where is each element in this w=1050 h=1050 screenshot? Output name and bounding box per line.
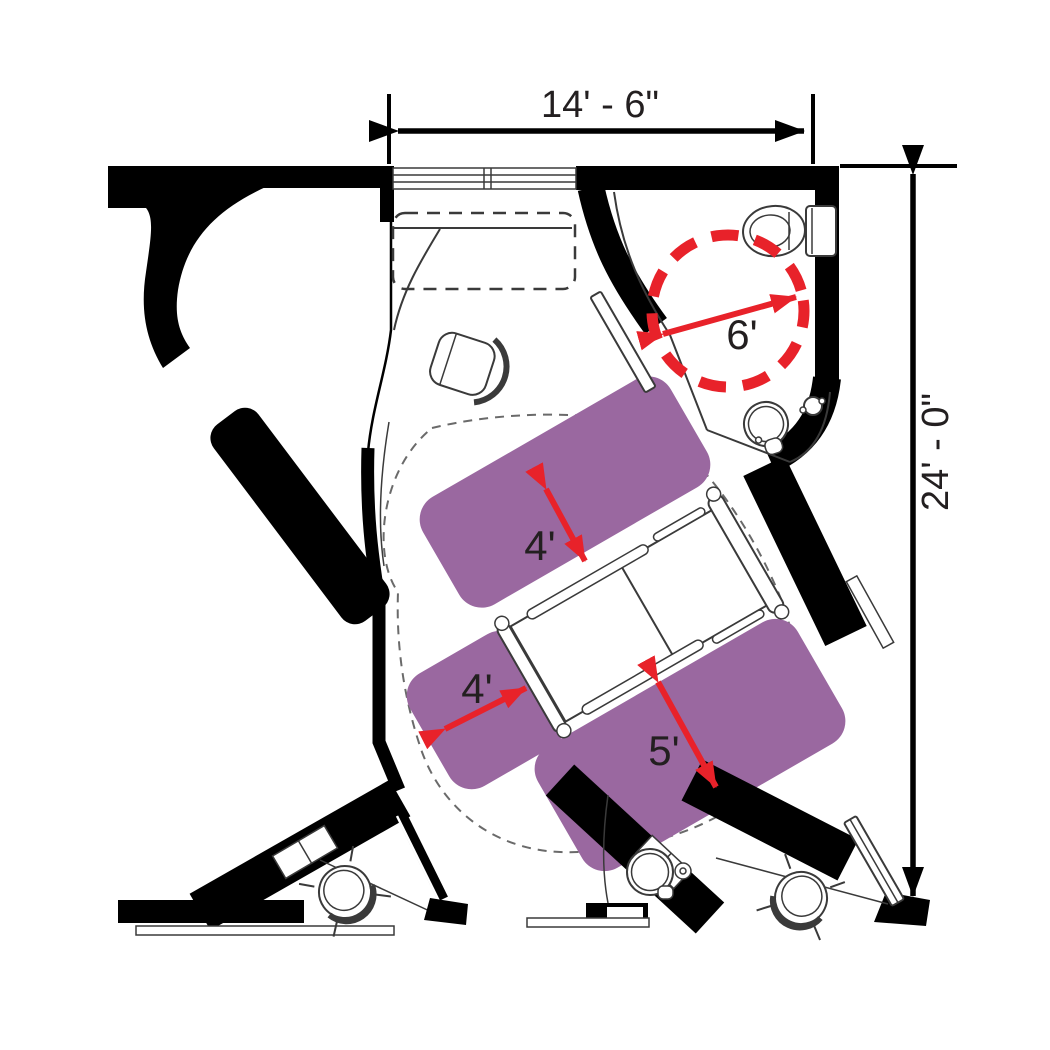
wall-top-left	[108, 166, 392, 188]
dimension-width-label: 14' - 6"	[541, 84, 659, 126]
toilet	[741, 203, 836, 258]
desk-front-curve	[394, 229, 440, 330]
desk-chair-seat	[426, 329, 498, 398]
wall-southeast-diagonal	[692, 780, 848, 860]
dimension-width: 14' - 6"	[389, 84, 813, 164]
chair-leg	[376, 888, 391, 903]
wall-west-lower	[368, 448, 399, 790]
desk-chair	[425, 323, 515, 409]
wall-west-upper-line	[368, 192, 391, 452]
wall-bottom-left-bar	[118, 900, 304, 923]
overhead-cabinet-dashed	[393, 213, 575, 289]
wall-top-right	[576, 166, 839, 190]
desk-area	[393, 213, 575, 409]
sink-faucet	[658, 886, 673, 899]
baseboard-southwest	[136, 926, 394, 935]
wall-bathroom-east	[815, 166, 839, 390]
fixture-knob	[819, 398, 825, 404]
floor-plan-canvas: 6' 4' 4' 5' 14' - 6" 24' - 0"	[0, 0, 1050, 1050]
transfer-side-label: 5'	[648, 727, 679, 774]
dimension-height-label: 24' - 0"	[915, 393, 957, 511]
wall-curved-left-hook	[110, 186, 268, 368]
sink-bowl-inner	[632, 854, 669, 891]
dimension-height: 24' - 0"	[840, 166, 957, 896]
turning-circle-label: 6'	[726, 311, 757, 358]
floor-plan-figure: 6' 4' 4' 5' 14' - 6" 24' - 0"	[0, 0, 1050, 1050]
southeast-door-leaf	[844, 816, 904, 906]
sink-knob	[755, 436, 763, 444]
door-leaf-southwest	[401, 814, 443, 899]
foot-side-label: 4'	[461, 665, 492, 712]
baseboard-south	[527, 918, 649, 927]
southwest-door	[397, 814, 468, 925]
door-leaf-line	[850, 819, 898, 902]
chair-leg	[810, 926, 824, 940]
fixture-knob	[800, 407, 806, 413]
chair-leg	[757, 901, 771, 915]
window-north	[393, 168, 576, 189]
door-stop-blob	[424, 898, 468, 925]
wall-west-inner-line	[380, 422, 389, 566]
chair-leg	[299, 878, 314, 893]
wall-bottom-middle-gap	[607, 907, 643, 918]
sink-soap-knob	[680, 868, 686, 874]
head-side-label: 4'	[524, 522, 555, 569]
toilet-tank	[806, 206, 836, 256]
door-leaf-highlight	[397, 816, 439, 901]
